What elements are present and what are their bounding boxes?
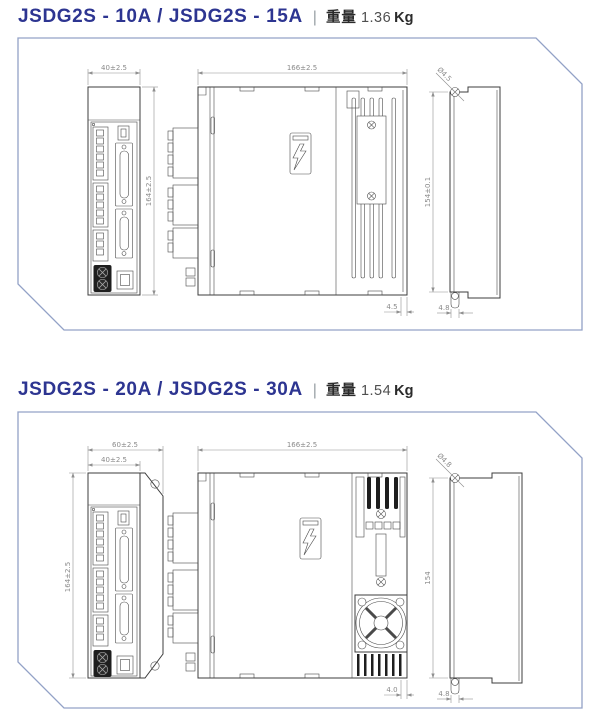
drawings-canvas: 40±2.5 164±2.5 [0,0,600,720]
dim-rear-slot: 4.8 [438,690,449,698]
dim-rear-pitch: 154±0.1 [424,177,432,207]
dim-front-width: 40±2.5 [101,64,127,72]
screw-icon [377,578,386,587]
screw-icon [368,121,376,129]
charge-knobs [94,265,112,292]
dim-rear-slot: 4.8 [438,304,449,312]
dim-side-bottom: 4.5 [386,303,397,311]
dim-side-bottom: 4.0 [386,686,397,694]
screw-icon [368,192,376,200]
dim-side-length: 166±2.5 [287,64,317,72]
dim-front-outer-width: 60±2.5 [112,441,138,449]
dim-rear-pitch: 154 [424,571,432,585]
screw-icon [377,510,386,519]
datasheet-page: JSDG2S - 10A / JSDG2S - 15A | 重量 1.36 Kg… [0,0,600,720]
dim-side-length: 166±2.5 [287,441,317,449]
dim-front-height: 164±2.5 [145,176,153,206]
charge-knobs [94,650,112,677]
dim-front-height: 164±2.5 [64,562,72,592]
dim-front-inner-width: 40±2.5 [101,456,127,464]
